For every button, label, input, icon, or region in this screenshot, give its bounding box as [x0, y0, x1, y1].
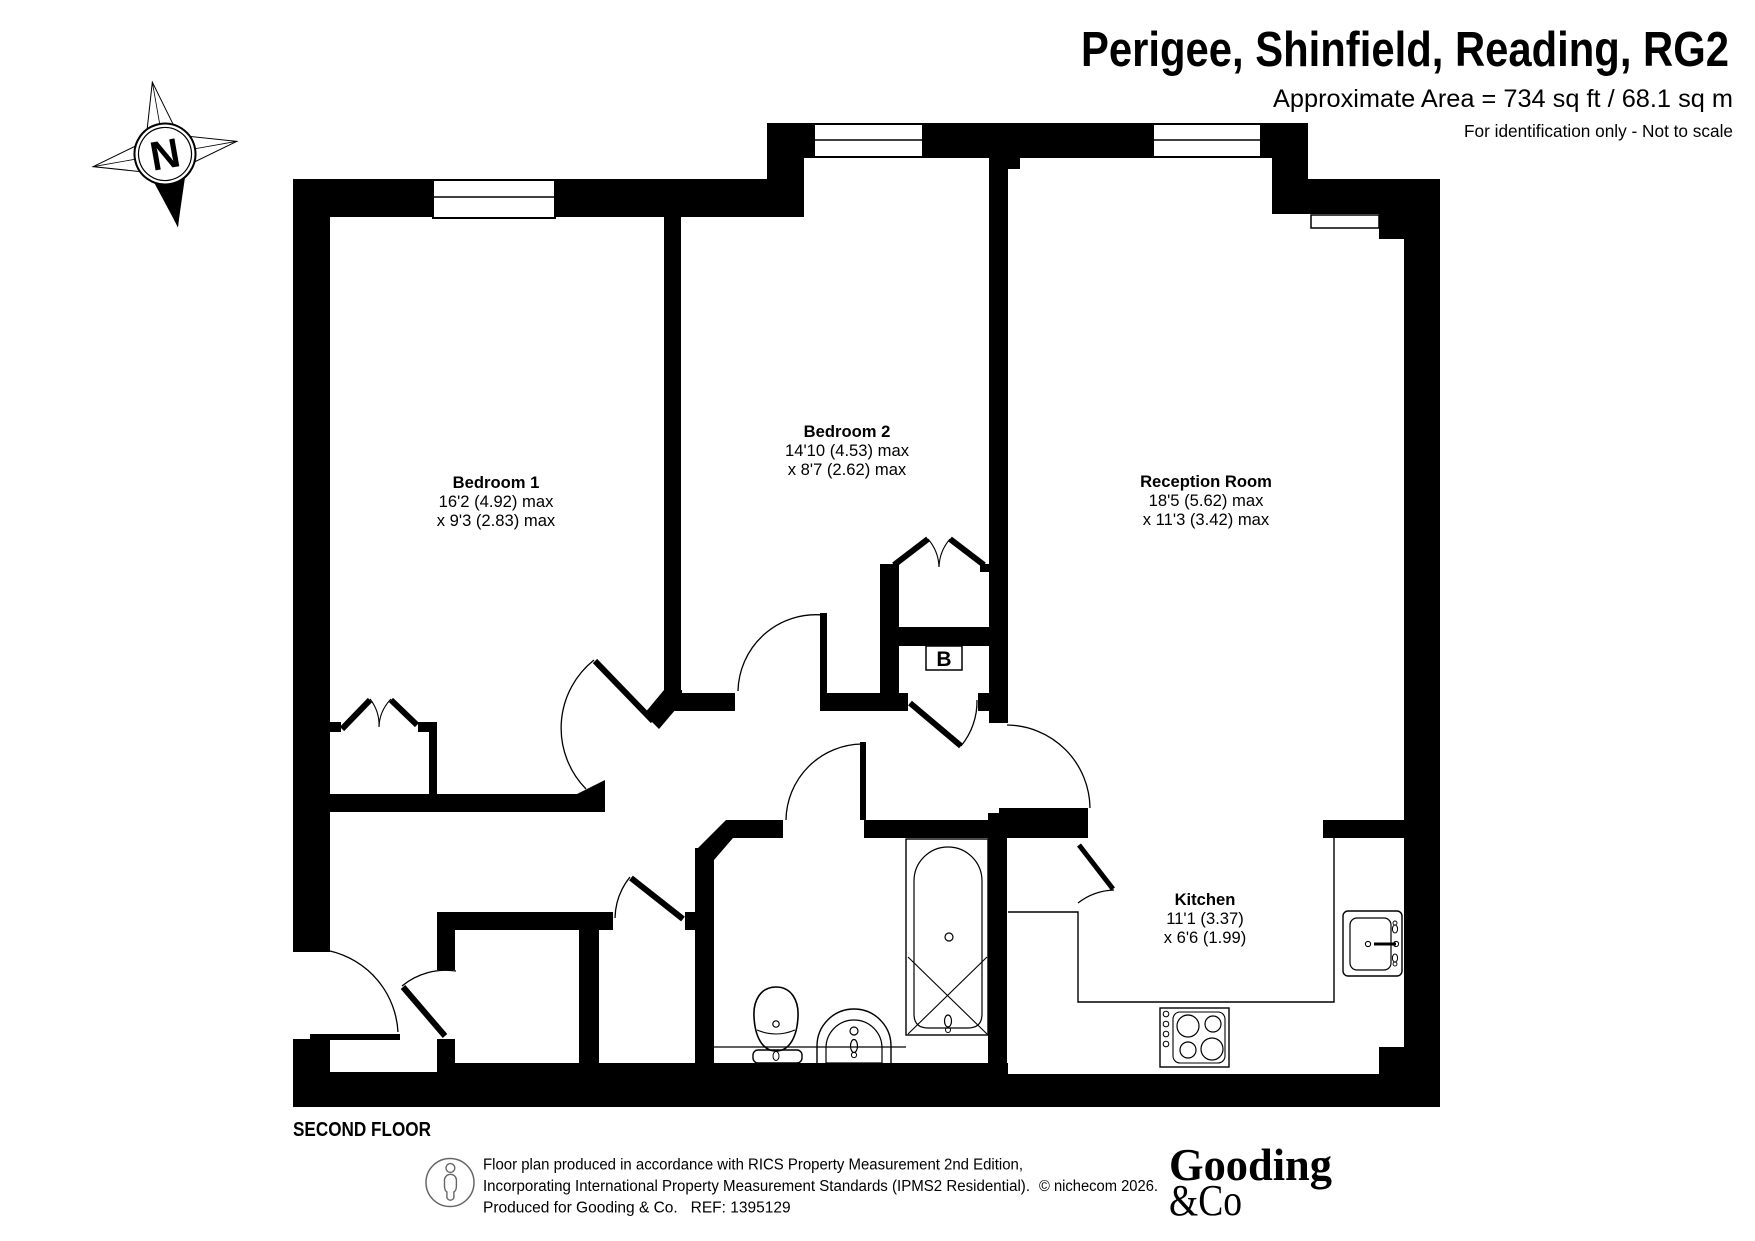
svg-text:Reception Room: Reception Room [1140, 472, 1272, 491]
svg-text:B: B [936, 648, 951, 671]
svg-text:14'10 (4.53) max: 14'10 (4.53) max [785, 441, 910, 460]
svg-text:© nichecom 2026.: © nichecom 2026. [1039, 1178, 1158, 1195]
svg-text:Bedroom 1: Bedroom 1 [453, 473, 540, 492]
svg-text:Perigee, Shinfield, Reading, R: Perigee, Shinfield, Reading, RG2 [1081, 23, 1729, 77]
svg-text:Approximate Area = 734 sq ft /: Approximate Area = 734 sq ft / 68.1 sq m [1273, 85, 1733, 113]
svg-text:x 9'3 (2.83) max: x 9'3 (2.83) max [437, 511, 556, 530]
svg-text:11'1 (3.37): 11'1 (3.37) [1166, 909, 1244, 928]
svg-text:Produced for Gooding & Co. R: Produced for Gooding & Co. REF: 1395129 [483, 1200, 791, 1217]
svg-text:Incorporating International Pr: Incorporating International Property Mea… [483, 1178, 1030, 1195]
svg-text:Floor plan produced in accorda: Floor plan produced in accordance with R… [483, 1157, 1023, 1174]
svg-text:16'2 (4.92) max: 16'2 (4.92) max [439, 492, 554, 511]
svg-text:&Co: &Co [1169, 1176, 1242, 1225]
svg-text:For identification only - Not: For identification only - Not to scale [1464, 121, 1733, 141]
svg-text:x 6'6 (1.99): x 6'6 (1.99) [1164, 928, 1247, 947]
svg-text:18'5 (5.62) max: 18'5 (5.62) max [1149, 491, 1264, 510]
svg-text:Bedroom 2: Bedroom 2 [804, 422, 891, 441]
svg-text:SECOND FLOOR: SECOND FLOOR [293, 1119, 431, 1141]
svg-text:x 8'7 (2.62) max: x 8'7 (2.62) max [788, 460, 907, 479]
svg-text:Kitchen: Kitchen [1175, 890, 1236, 909]
svg-text:x 11'3 (3.42) max: x 11'3 (3.42) max [1143, 510, 1270, 529]
